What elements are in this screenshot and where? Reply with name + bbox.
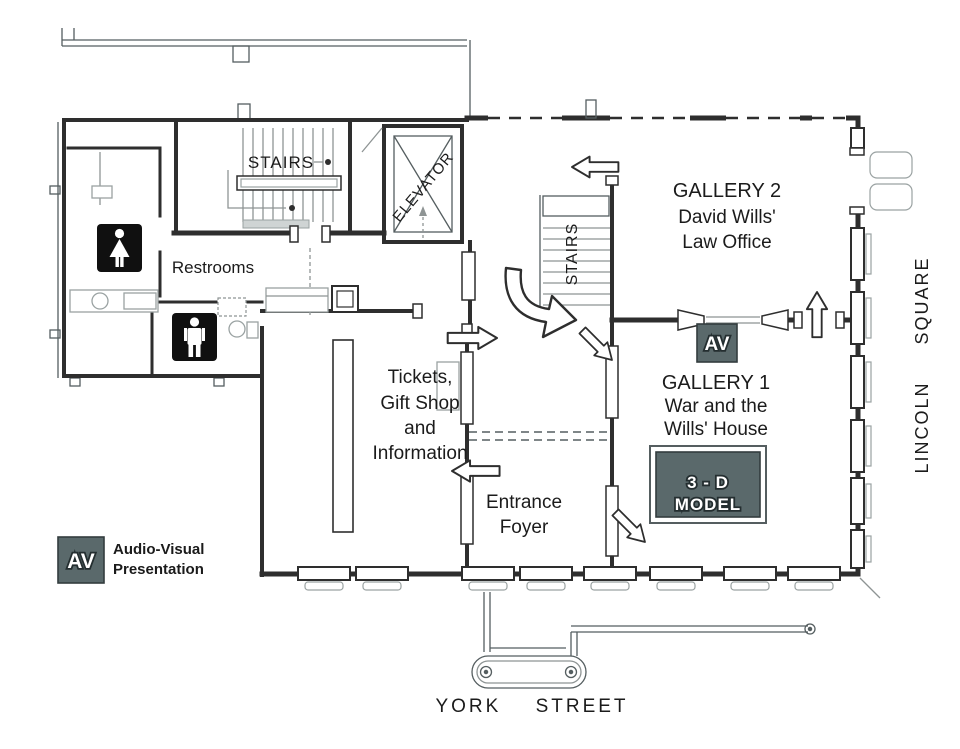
label-stairs-north: STAIRS xyxy=(248,153,314,172)
south-window xyxy=(650,567,702,590)
label-gallery1-desc2: Wills' House xyxy=(664,419,768,440)
label-restrooms: Restrooms xyxy=(172,258,254,277)
south-window xyxy=(520,567,572,590)
south-wall-windows xyxy=(298,567,840,590)
model-3d-line2: MODEL xyxy=(675,495,741,514)
label-stairs-central: STAIRS xyxy=(564,223,581,286)
label-gallery2-desc1: David Wills' xyxy=(678,207,776,228)
south-window xyxy=(356,567,408,590)
south-window xyxy=(788,567,840,590)
north-wall-windows xyxy=(488,100,846,124)
york-street-walkway xyxy=(472,592,815,688)
label-gallery2-name: GALLERY 2 xyxy=(673,180,781,202)
label-foyer-line1: Entrance xyxy=(486,492,562,513)
model-3d-line1: 3 - D xyxy=(687,473,729,492)
east-door-steps xyxy=(850,148,912,214)
legend-audio-visual: AV Audio-Visual Presentation xyxy=(58,537,204,583)
av-marker-label: AV xyxy=(705,334,730,355)
legend-line2: Presentation xyxy=(113,561,204,578)
label-lincoln-square: LINCOLN SQUARE xyxy=(912,256,932,473)
legend-av-abbrev: AV xyxy=(67,550,95,573)
label-gallery2-desc2: Law Office xyxy=(682,232,771,253)
ticket-counter xyxy=(333,340,353,532)
south-window xyxy=(724,567,776,590)
model-3d-exhibit: 3 - D MODEL xyxy=(650,446,766,523)
label-gallery1-name: GALLERY 1 xyxy=(662,372,770,394)
arrow-left-gallery2 xyxy=(572,157,618,178)
label-tickets-line3: and xyxy=(404,418,436,439)
legend-line1: Audio-Visual xyxy=(113,541,204,558)
label-tickets-line1: Tickets, xyxy=(388,367,453,388)
womens-restroom-icon xyxy=(97,224,142,272)
floor-plan: AV 3 - D MODEL AV Audio-Visual Presentat… xyxy=(0,0,960,749)
label-york-street: YORK STREET xyxy=(435,696,628,717)
label-foyer-line2: Foyer xyxy=(500,517,549,538)
av-marker: AV xyxy=(697,324,737,362)
south-window xyxy=(584,567,636,590)
foyer-opening-dashed xyxy=(469,432,610,440)
label-tickets-line4: Information xyxy=(372,443,467,464)
south-window xyxy=(298,567,350,590)
label-tickets-line2: Gift Shop xyxy=(380,393,459,414)
label-gallery1-desc1: War and the xyxy=(665,396,768,417)
arrow-up-gallery1 xyxy=(807,292,827,337)
main-entrance-door xyxy=(462,567,514,590)
mens-restroom-icon xyxy=(172,313,217,361)
